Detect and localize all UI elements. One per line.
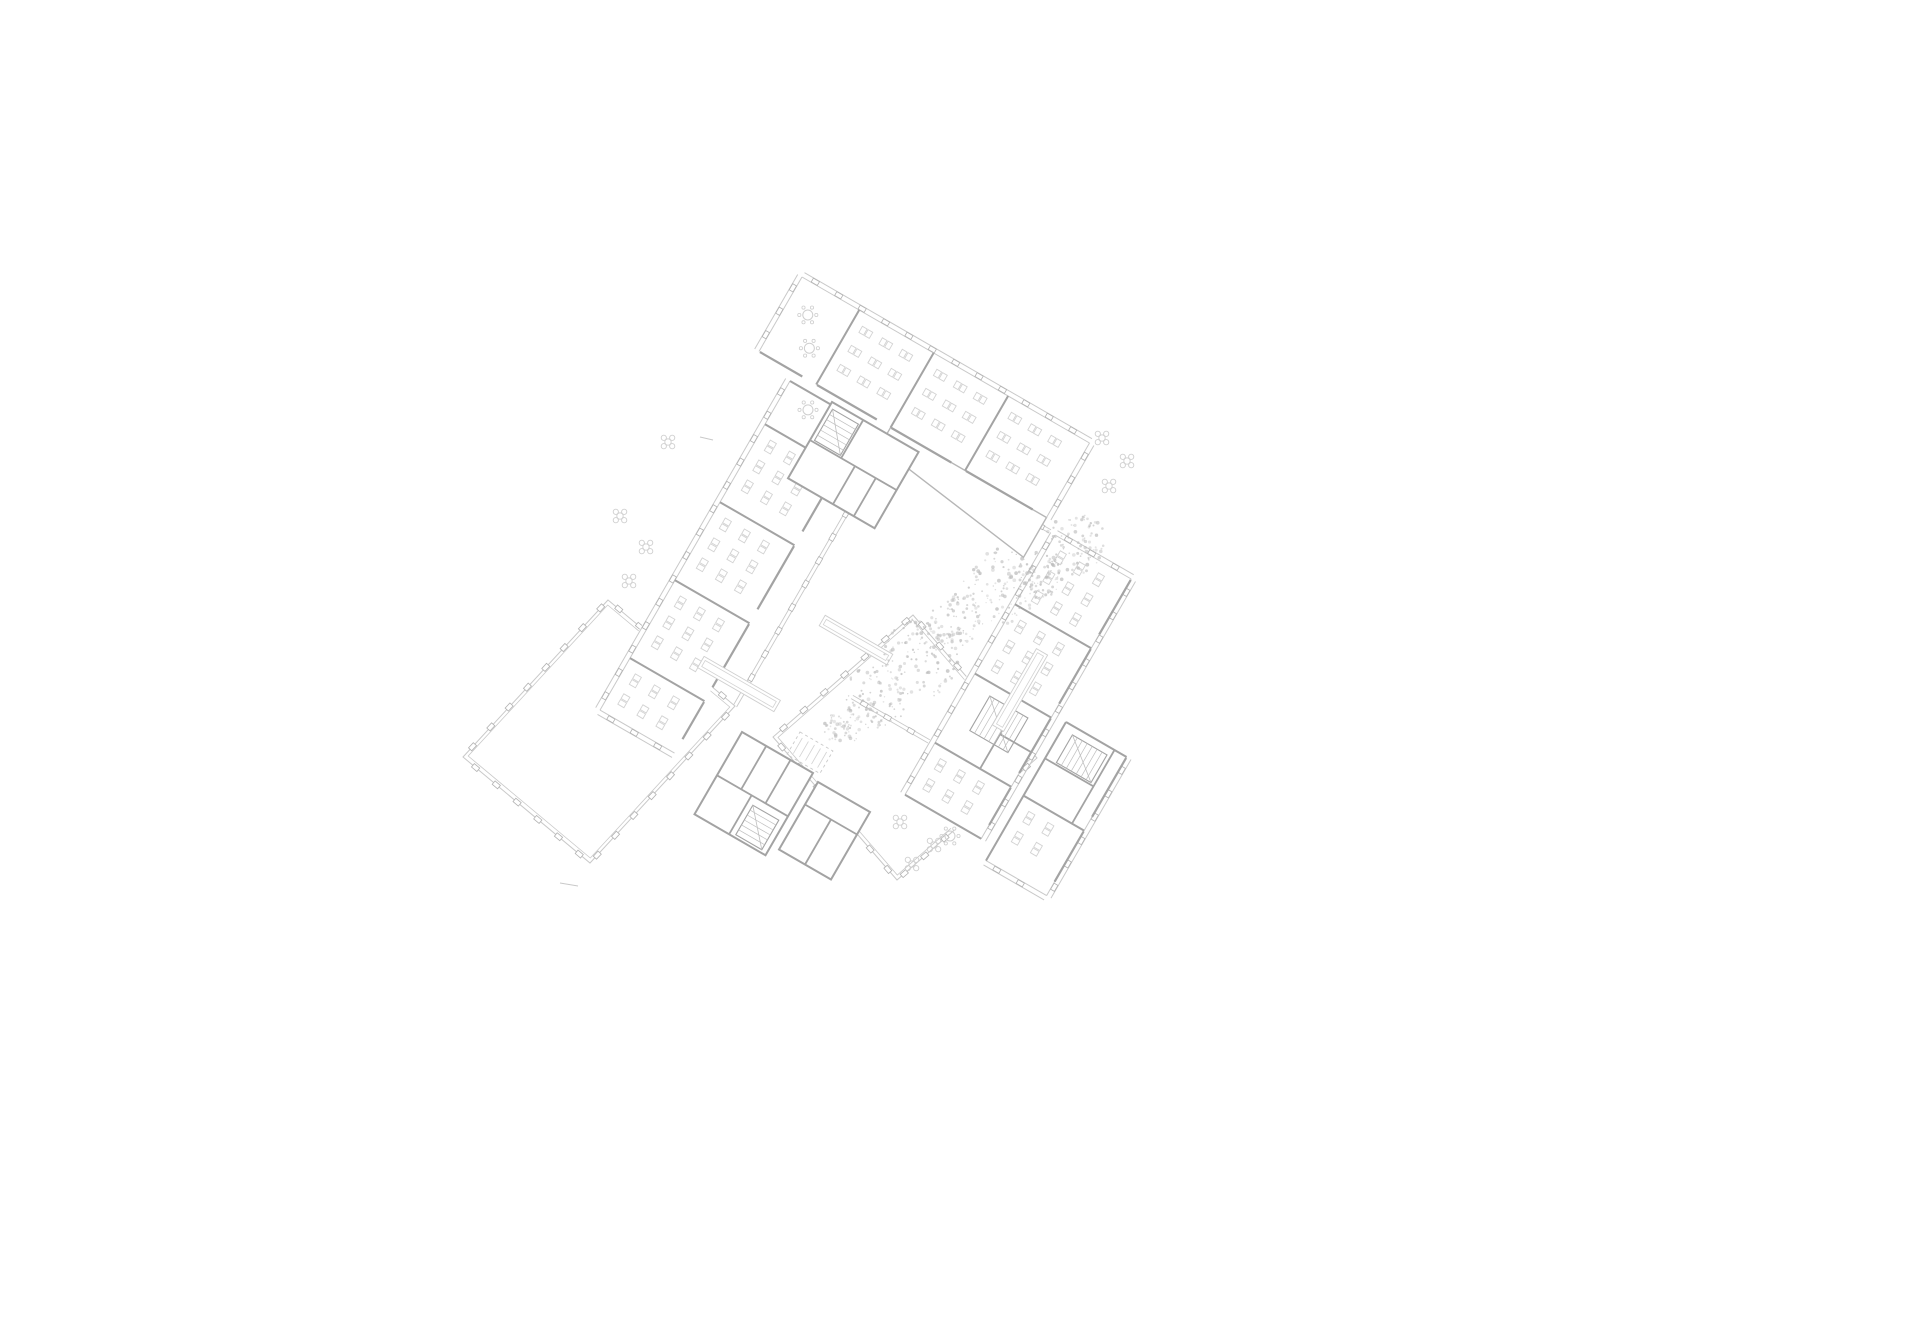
dimension-mark: [700, 437, 713, 440]
floor-plan-drawing: [0, 0, 1920, 1323]
floor-plan-canvas: [0, 0, 1920, 1323]
dimension-mark: [560, 883, 578, 886]
